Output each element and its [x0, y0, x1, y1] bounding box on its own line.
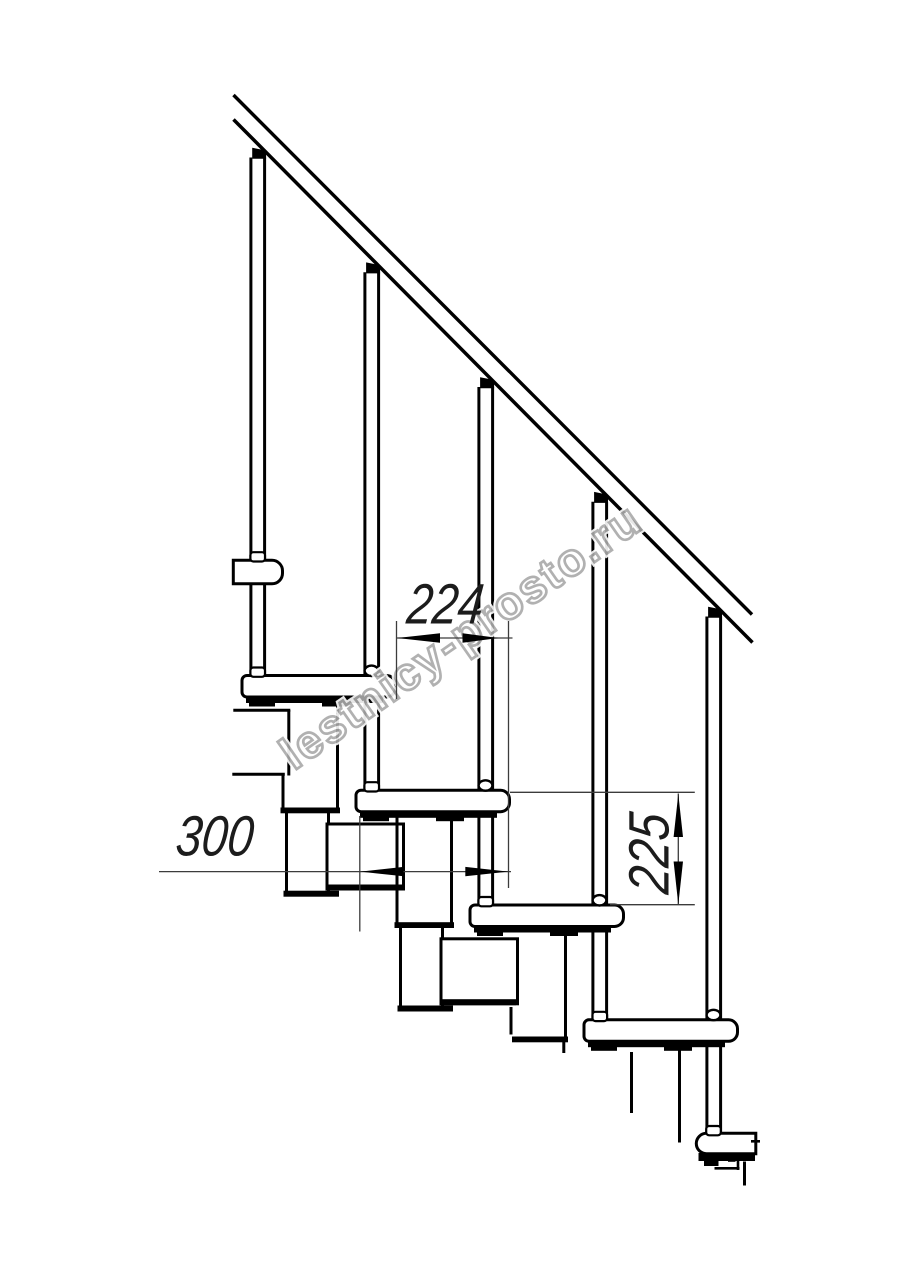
- svg-text:225: 225: [618, 809, 682, 897]
- svg-text:300: 300: [173, 805, 257, 869]
- svg-text:224: 224: [403, 573, 487, 637]
